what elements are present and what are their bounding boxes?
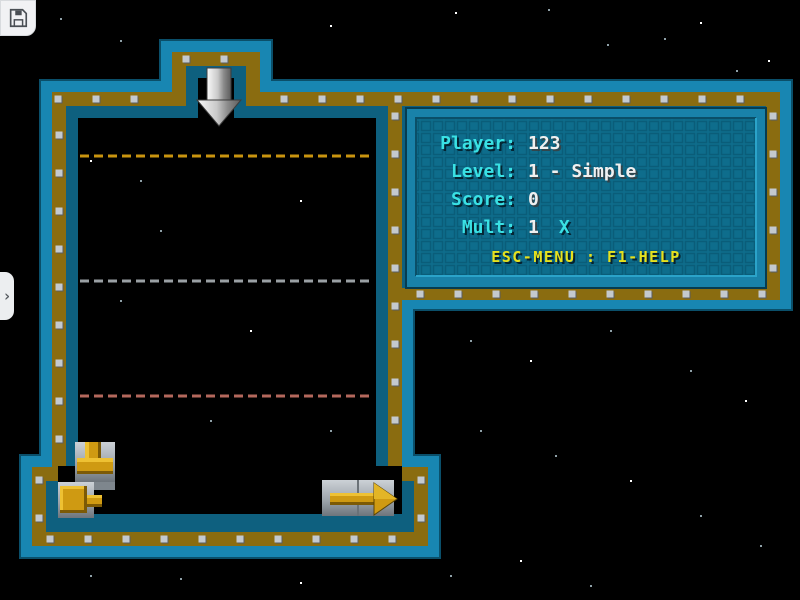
sidebar-expand-button[interactable]: › <box>0 272 14 320</box>
game-board-canvas[interactable] <box>0 0 800 600</box>
chevron-right-icon: › <box>2 289 11 304</box>
help-text: ESC-MENU : F1-HELP <box>416 248 756 266</box>
stat-label: Player: <box>416 130 516 158</box>
stat-suffix: X <box>559 217 570 238</box>
floppy-icon <box>7 7 29 29</box>
stat-value: 1 - Simple <box>528 161 636 182</box>
arrow-right-piece <box>322 480 397 516</box>
stat-value: 123 <box>528 133 561 154</box>
status-panel: Player:123 Level:1 - Simple Score:0 Mult… <box>416 118 756 278</box>
stat-value: 0 <box>528 189 539 210</box>
stat-row-player: Player:123 <box>416 130 756 158</box>
stat-label: Mult: <box>416 214 516 242</box>
save-button[interactable] <box>0 0 36 36</box>
stat-value: 1 <box>528 217 539 238</box>
game-screen: › Player:123 Level:1 - Simple Score:0 Mu… <box>0 0 800 600</box>
stat-label: Score: <box>416 186 516 214</box>
stat-label: Level: <box>416 158 516 186</box>
stat-row-mult: Mult:1X <box>416 214 756 242</box>
stat-row-level: Level:1 - Simple <box>416 158 756 186</box>
stat-row-score: Score:0 <box>416 186 756 214</box>
